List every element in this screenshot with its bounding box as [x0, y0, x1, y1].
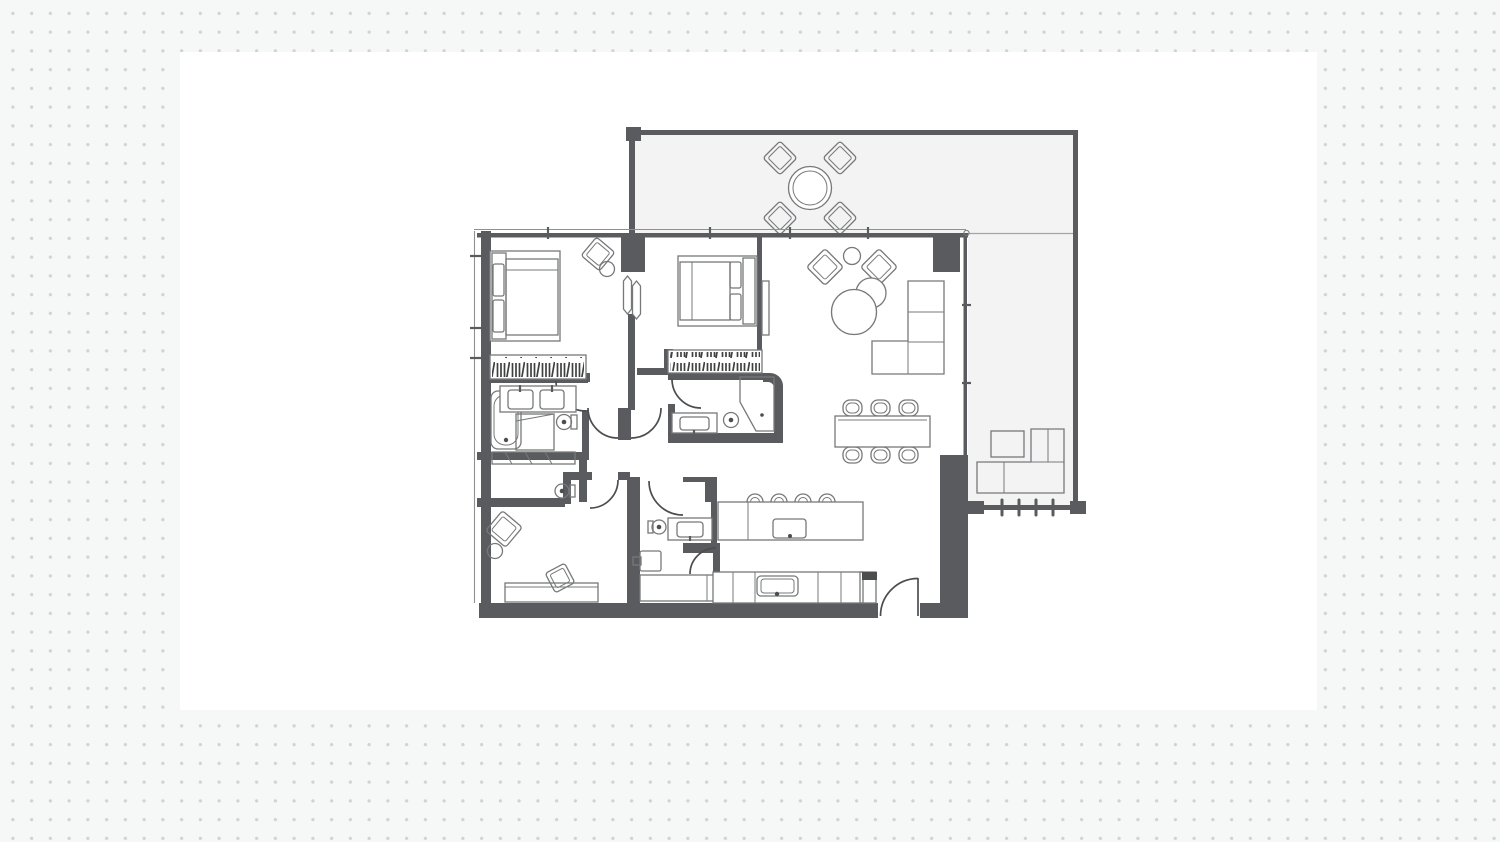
canvas-background [0, 0, 1500, 842]
laundry-closet [633, 551, 717, 601]
round-side-table-icon [844, 248, 861, 265]
tv-panel-icon [762, 281, 769, 335]
armchair-icon [807, 249, 844, 286]
door-swing-icon [590, 480, 618, 508]
double-bed-icon [490, 251, 560, 341]
toilet-icon [724, 413, 739, 428]
door-swing-icon [649, 481, 683, 515]
column-icon [933, 237, 960, 272]
wardrobe-hangers-icon [490, 355, 586, 379]
kitchen-island-icon [718, 502, 863, 540]
door-swing-icon [631, 408, 661, 438]
living-room [762, 248, 944, 464]
bedroom-2 [668, 256, 762, 373]
dining-table-icon [835, 416, 930, 447]
utility-counter-icon [640, 575, 717, 601]
sink-vanity-icon [672, 413, 717, 436]
door-swing-icon [672, 379, 701, 408]
bar-stool-icon [747, 494, 835, 502]
toilet-icon [648, 520, 666, 534]
entry-door-swing-icon [881, 578, 919, 616]
kitchen-counter-icon [713, 572, 877, 603]
office [486, 511, 598, 602]
wardrobe-hangers-icon [668, 350, 762, 373]
bathroom-1 [491, 385, 577, 450]
outdoor-dining-table-icon [789, 167, 832, 210]
bench-icon [516, 414, 554, 450]
bathroom-2 [672, 377, 774, 436]
shower-icon [740, 377, 774, 431]
double-bed-icon [678, 256, 757, 326]
dining-set [835, 400, 930, 463]
sink-vanity-icon [668, 518, 712, 541]
glazed-partition [624, 276, 641, 319]
double-sink-vanity-icon [500, 385, 576, 412]
powder-room [648, 518, 712, 541]
coffee-table-icon [832, 278, 887, 335]
armchair-icon [486, 511, 523, 548]
column-icon [621, 233, 645, 272]
toilet-icon [557, 415, 578, 430]
floor-plan [0, 0, 1500, 842]
terrace-post [626, 127, 641, 141]
armchair-icon [581, 237, 615, 271]
door-swing-icon [588, 408, 618, 438]
kitchen [713, 494, 877, 603]
bedroom-1 [490, 237, 615, 379]
